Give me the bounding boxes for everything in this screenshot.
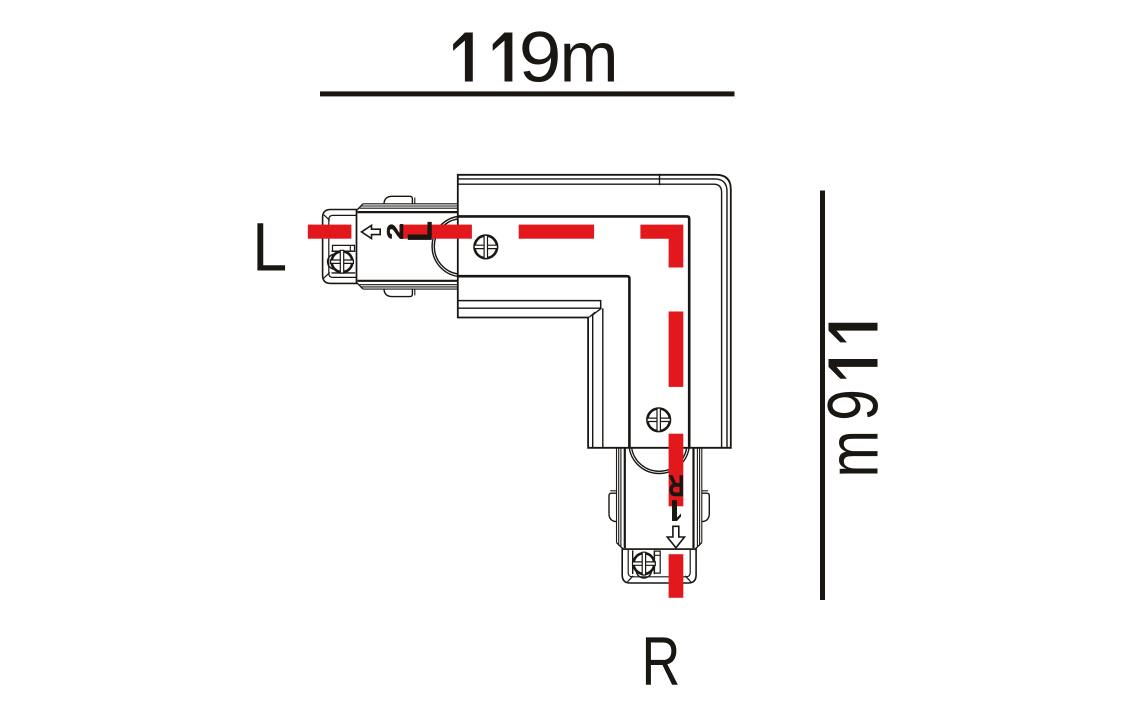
svg-text:L: L — [252, 208, 287, 285]
svg-text:R: R — [642, 623, 681, 700]
svg-text:m: m — [560, 19, 619, 98]
svg-text:9: 9 — [519, 17, 562, 97]
svg-text:L: L — [401, 221, 439, 242]
svg-text:9: 9 — [813, 389, 893, 421]
svg-text:R: R — [668, 469, 684, 503]
svg-text:m: m — [813, 430, 893, 477]
